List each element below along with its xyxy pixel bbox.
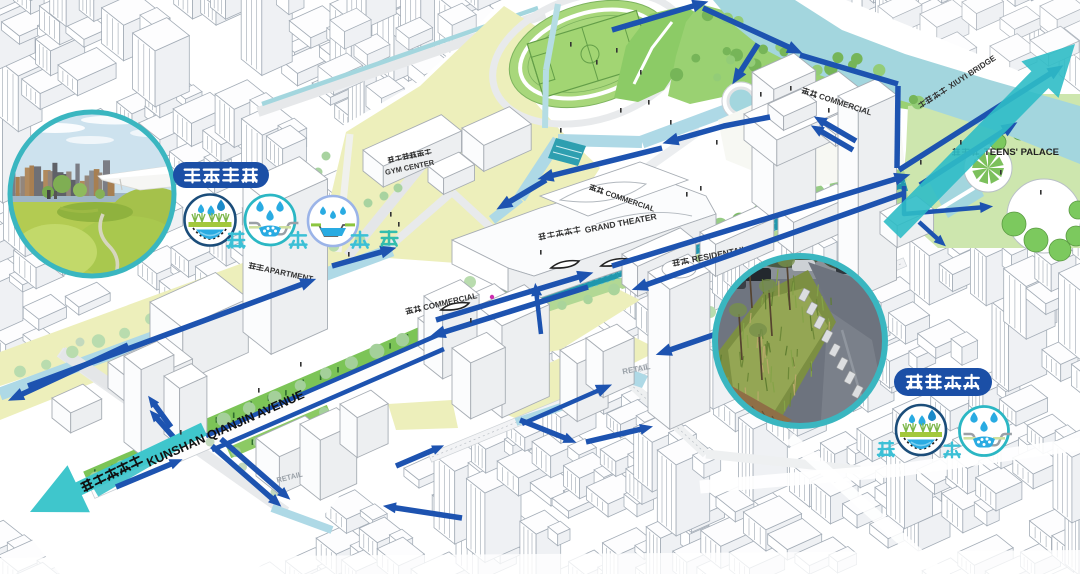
svg-text:TEENS' PALACE: TEENS' PALACE xyxy=(984,147,1059,158)
